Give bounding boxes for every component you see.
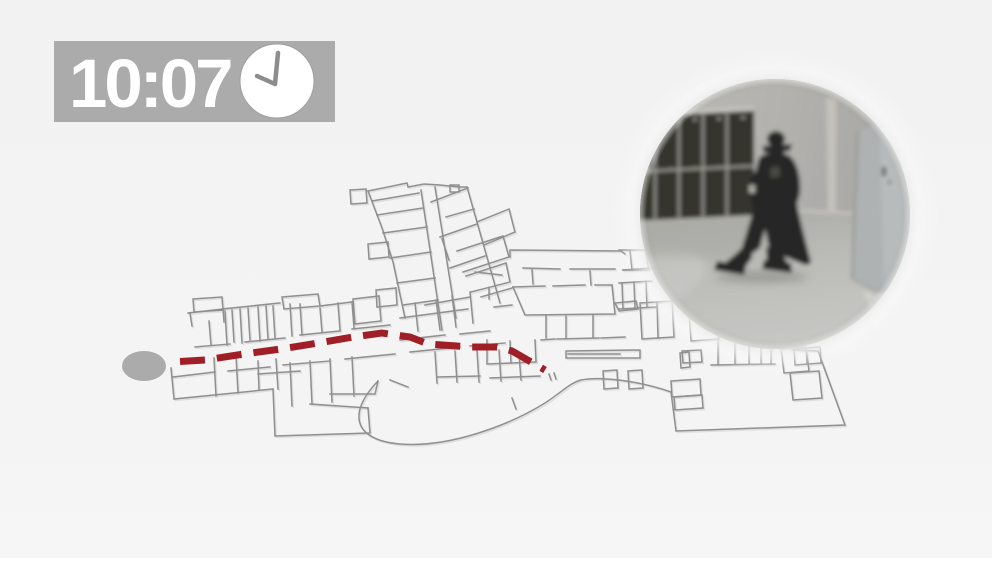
svg-text:10:07: 10:07	[69, 45, 231, 122]
